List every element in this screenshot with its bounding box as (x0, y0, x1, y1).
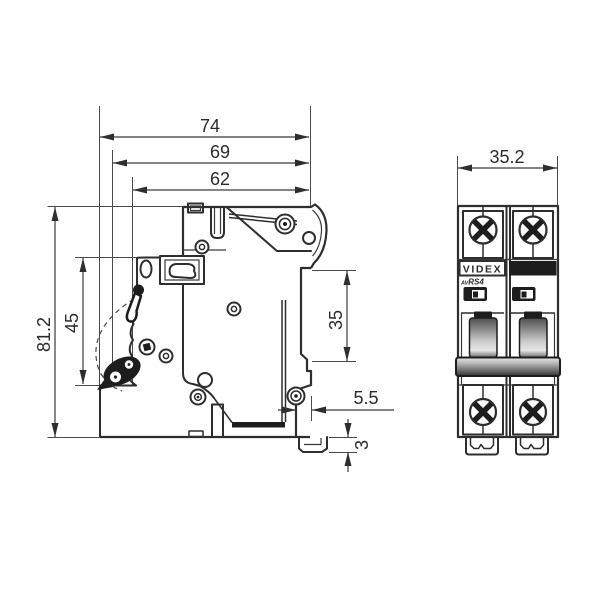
dim-62-label: 62 (210, 169, 230, 189)
dim-front-height: 45 (62, 258, 87, 384)
dim-overall-height: 81.2 (34, 207, 59, 437)
dim-35-label: 35 (326, 310, 346, 330)
technical-drawing-page: 74 69 62 81.2 45 (0, 0, 600, 600)
dim-width-inner: 62 (133, 169, 309, 194)
dim-din-rail: 35 (326, 271, 351, 361)
screw-square (140, 340, 155, 355)
dim-74-label: 74 (200, 116, 220, 136)
terminal-screw-bottom-left (470, 399, 496, 425)
brand-band-dark (509, 261, 557, 276)
terminal-screw-bottom-right (520, 399, 546, 425)
dim-overall-width: 74 (100, 116, 309, 141)
terminal-screw-top-right (520, 217, 547, 244)
front-view: 35.2 (456, 147, 560, 455)
toggle-handle-left (470, 318, 498, 358)
toggle-window (160, 256, 204, 284)
dim-69-label: 69 (210, 142, 230, 162)
terminal-screw-top-left (470, 217, 497, 244)
handle-tie-bar (456, 358, 560, 377)
dim-35-2-label: 35.2 (489, 147, 524, 167)
toggle-lever (127, 293, 141, 322)
dim-45-label: 45 (62, 313, 82, 333)
dim-front-width: 35.2 (458, 147, 558, 205)
dim-5-5-label: 5.5 (353, 388, 378, 408)
breaker-dimension-drawing: 74 69 62 81.2 45 (0, 0, 600, 600)
bottom-clamp-tabs (466, 437, 548, 455)
toggle-handle-right (520, 318, 548, 358)
dim-clip-protrusion: 3 (345, 419, 373, 472)
brand-label: VIDEX (463, 264, 503, 276)
side-view: 74 69 62 81.2 45 (34, 106, 394, 472)
rail-seat-shadow (232, 422, 285, 428)
side-body-outline (100, 204, 327, 453)
dim-width-secondary: 69 (113, 142, 309, 167)
dim-81-2-label: 81.2 (34, 317, 54, 352)
front-body: VIDEX AVRS4 (456, 206, 560, 455)
dim-3-label: 3 (352, 440, 372, 450)
